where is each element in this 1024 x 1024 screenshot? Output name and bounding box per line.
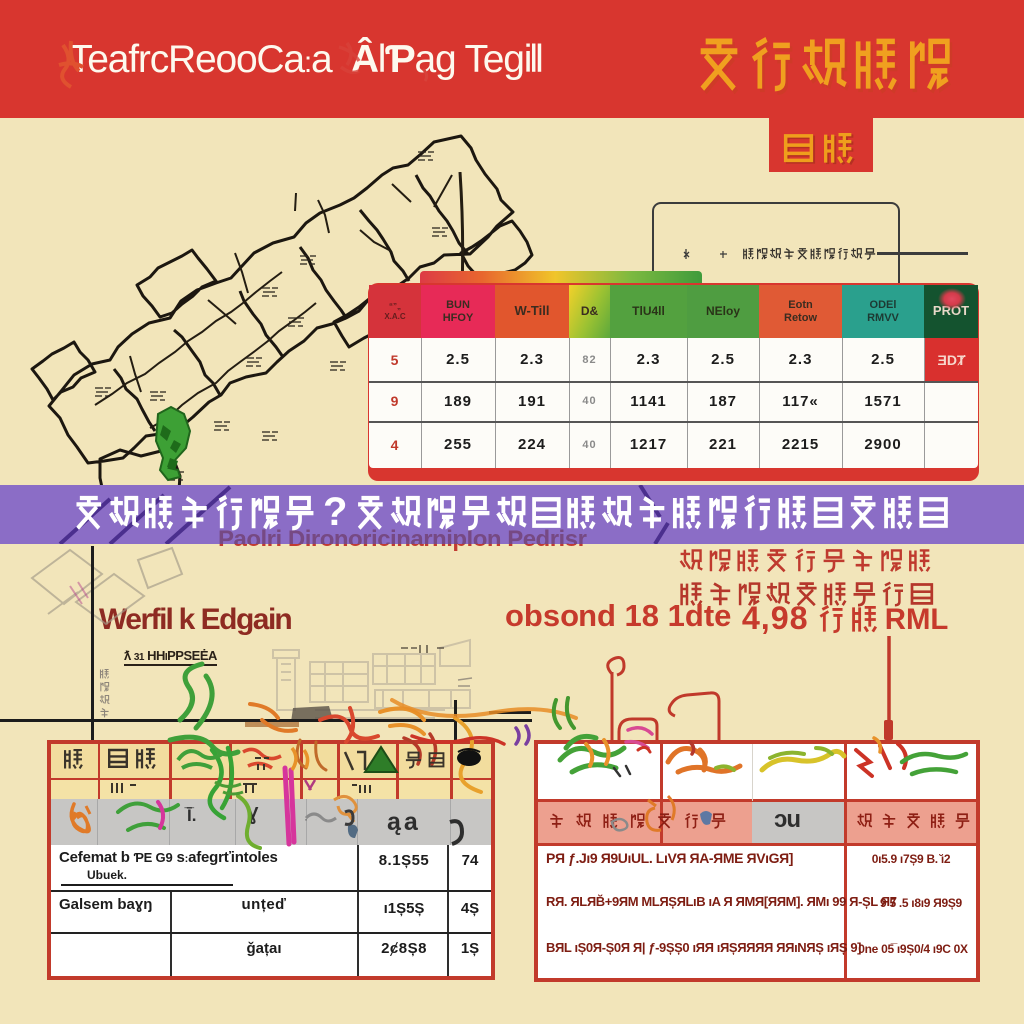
svg-text:?: ? <box>323 492 347 534</box>
